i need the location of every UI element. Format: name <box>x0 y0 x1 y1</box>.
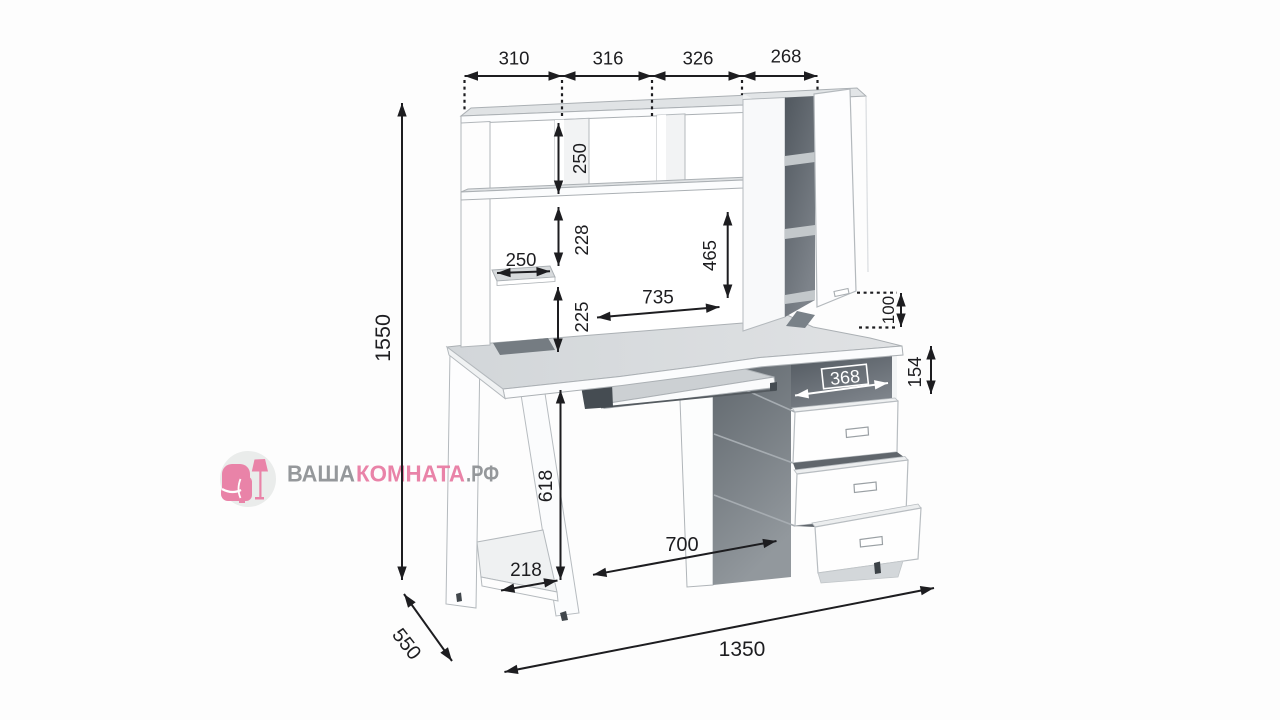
svg-text:268: 268 <box>771 46 802 67</box>
svg-text:КОМНАТА: КОМНАТА <box>356 461 465 487</box>
svg-text:225: 225 <box>571 302 592 333</box>
svg-text:1350: 1350 <box>719 638 766 661</box>
svg-text:368: 368 <box>829 366 861 389</box>
svg-text:735: 735 <box>642 288 674 309</box>
svg-text:618: 618 <box>535 470 557 503</box>
svg-text:ВАША: ВАША <box>287 461 355 487</box>
svg-text:250: 250 <box>506 249 537 270</box>
svg-text:250: 250 <box>569 143 590 174</box>
svg-text:1550: 1550 <box>371 314 395 362</box>
svg-text:.РФ: .РФ <box>466 461 499 487</box>
svg-text:310: 310 <box>499 48 530 69</box>
svg-text:218: 218 <box>510 560 542 581</box>
svg-text:100: 100 <box>879 296 898 324</box>
svg-text:228: 228 <box>571 225 592 256</box>
svg-text:316: 316 <box>593 48 624 69</box>
svg-text:465: 465 <box>699 240 720 271</box>
svg-text:700: 700 <box>665 534 698 556</box>
svg-text:326: 326 <box>683 48 714 69</box>
svg-text:154: 154 <box>904 357 925 388</box>
